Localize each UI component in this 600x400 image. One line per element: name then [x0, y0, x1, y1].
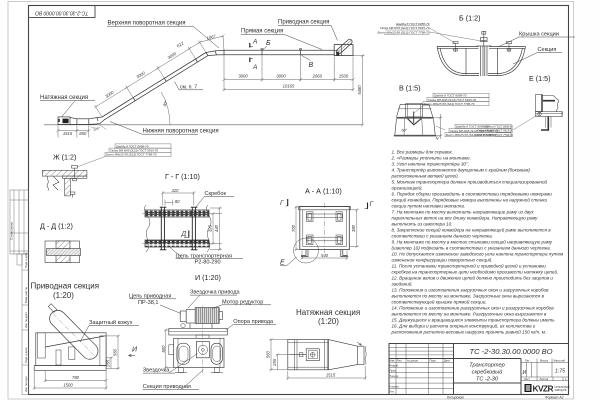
svg-text:Т.контр.: Т.контр.	[390, 374, 400, 378]
svg-text:Подп.: Подп.	[430, 359, 437, 363]
svg-text:Лит.: Лит.	[525, 358, 530, 362]
svg-text:Г: Г	[280, 200, 284, 207]
svg-text:Болт М8х25.58 ГОСТ 7798-70: Болт М8х25.58 ГОСТ 7798-70	[475, 133, 513, 137]
svg-text:Опора привода: Опора привода	[233, 319, 274, 325]
svg-text:Верхняя поворотная секция: Верхняя поворотная секция	[108, 21, 186, 27]
svg-text:320: 320	[172, 188, 180, 193]
svg-text:780: 780	[72, 375, 80, 380]
svg-text:4. Транспортёр выполняется: 4. Транспортёр выполняется двухцепным с …	[392, 166, 531, 172]
svg-text:12. Вращение валов и движе: 12. Вращение валов и движение цепей долж…	[392, 274, 554, 280]
svg-text:ЗАВОД РФ: ЗАВОД РФ	[555, 389, 567, 392]
svg-text:2. «Размеры уточнить на мо: 2. «Размеры уточнить на монтаже.	[391, 155, 472, 160]
svg-text:секций конвейера. Порядковые: секций конвейера. Порядковые номера выпо…	[392, 196, 548, 202]
svg-text:Копировал: Копировал	[447, 396, 464, 400]
svg-text:Подп. и дата: Подп. и дата	[24, 347, 28, 363]
svg-text:5480: 5480	[357, 85, 362, 95]
svg-text:3. Угол наклона транспортёр: 3. Угол наклона транспортёра 30°.	[392, 161, 470, 166]
svg-text:Подп. и дата: Подп. и дата	[24, 252, 28, 268]
svg-text:15. Движущиеся и вращающиес: 15. Движущиеся и вращающиеся элементы тр…	[392, 317, 556, 322]
svg-text:265: 265	[106, 359, 111, 368]
svg-text:Болт М8х25.58 (S13) ГОСТ 7798-: Болт М8х25.58 (S13) ГОСТ 7798-70	[106, 153, 157, 157]
svg-text:Б (1:2): Б (1:2)	[459, 14, 481, 23]
svg-text:Прямая секция: Прямая секция	[241, 29, 283, 35]
svg-text:Инв. № подл.: Инв. № подл.	[24, 376, 28, 392]
svg-text:440: 440	[214, 224, 219, 232]
svg-text:Цепь приводная: Цепь приводная	[129, 293, 171, 299]
svg-text:№ докум.: № докум.	[407, 360, 419, 363]
svg-text:Транспортер: Транспортер	[469, 363, 505, 369]
svg-text:Масштаб: Масштаб	[554, 358, 566, 362]
svg-text:Ж (1:2): Ж (1:2)	[53, 153, 76, 162]
svg-text:2660: 2660	[312, 74, 323, 79]
svg-text:А - А (1:10): А - А (1:10)	[305, 187, 342, 196]
svg-text:Формат А2: Формат А2	[545, 396, 564, 400]
svg-text:ТС -2-30.30.00.0000 ВО: ТС -2-30.30.00.0000 ВО	[470, 347, 553, 356]
svg-text:Пров.: Пров.	[390, 369, 397, 373]
svg-text:Инв. № дубл.: Инв. № дубл.	[24, 312, 28, 328]
svg-text:Утв.: Утв.	[390, 390, 395, 394]
svg-text:Д: Д	[181, 231, 187, 238]
svg-text:Натяжная секция: Натяжная секция	[40, 95, 88, 101]
svg-text:560: 560	[113, 348, 118, 356]
svg-text:1:75: 1:75	[555, 369, 565, 375]
svg-text:Взам. инв. №: Взам. инв. №	[24, 287, 28, 303]
svg-text:А: А	[252, 64, 257, 71]
svg-text:Лист: Лист	[524, 377, 531, 381]
svg-text:Приводная секция: Приводная секция	[31, 282, 100, 291]
svg-text:3000: 3000	[238, 74, 248, 79]
svg-text:Скребок: Скребок	[205, 191, 227, 197]
svg-text:Г - Г (1:10): Г - Г (1:10)	[165, 172, 200, 181]
svg-text:ТС-2-30.30.00.0000 ВО: ТС-2-30.30.00.0000 ВО	[35, 10, 88, 16]
svg-text:расположения расчетно-весовые: расположения расчетно-весовые нагрузки п…	[391, 328, 547, 334]
svg-text:14. Положение и изготовлени: 14. Положение и изготовление разгрузочны…	[392, 305, 555, 310]
svg-text:Звездочка: Звездочка	[143, 368, 170, 374]
svg-text:7. На монтаже по месту вы: 7. На монтаже по месту выполнить направл…	[392, 209, 535, 214]
svg-text:Крышка секции: Крышка секции	[519, 32, 559, 38]
svg-text:16. Для выбора и расчета: 16. Для выбора и расчета опорных констру…	[392, 322, 536, 328]
svg-text:см. п. 7: см. п. 7	[180, 84, 197, 90]
svg-text:Дата: Дата	[444, 359, 450, 363]
svg-text:выполняется по месту на мо: выполняется по месту на монтаже. Разгруз…	[392, 311, 547, 316]
svg-text:6. Порядок сборки производи: 6. Порядок сборки производить в соответс…	[392, 191, 553, 196]
svg-text:700: 700	[291, 224, 296, 232]
svg-text:11. После установки транспо: 11. После установки транспортерной и при…	[392, 262, 547, 268]
svg-text:выполняется по месту на мо: выполняется по месту на монтаже. Загрузо…	[392, 293, 545, 298]
svg-text:В: В	[309, 62, 314, 69]
svg-text:соответствии с указанием да: соответствии с указанием данного чертежа…	[392, 233, 493, 238]
svg-text:Шайба 8 ГОСТ 6958-70: Шайба 8 ГОСТ 6958-70	[484, 125, 514, 129]
svg-text:13. Положения и изготовления: 13. Положения и изготовления загрузочных…	[392, 287, 550, 292]
svg-text:ТС -2-30: ТС -2-30	[476, 377, 499, 383]
svg-text:Разраб.: Разраб.	[390, 364, 400, 368]
svg-text:3000: 3000	[276, 74, 286, 79]
svg-text:соответствующей крышке прямо: соответствующей крышке прямой секции.	[392, 298, 487, 304]
svg-text:заеданий.: заеданий.	[391, 280, 413, 286]
svg-text:ПР-38,1: ПР-38,1	[138, 300, 159, 306]
svg-text:Р2-80-290: Р2-80-290	[195, 259, 221, 265]
svg-text:80: 80	[175, 199, 180, 204]
svg-text:скребков на транспортерные: скребков на транспортерные цепи необходи…	[392, 268, 559, 274]
svg-text:Защитный кожух: Защитный кожух	[89, 319, 133, 326]
svg-text:Д - Д (1:2): Д - Д (1:2)	[40, 222, 73, 231]
svg-text:1515: 1515	[326, 373, 336, 378]
svg-text:850: 850	[79, 131, 87, 136]
svg-text:Нижняя поворотная секция: Нижняя поворотная секция	[143, 129, 219, 135]
svg-text:Звездочка привода: Звездочка привода	[190, 290, 241, 296]
svg-text:560: 560	[266, 351, 271, 359]
svg-text:1500: 1500	[63, 383, 73, 388]
svg-text:секции путем наплавки метал: секции путем наплавки металла.	[392, 203, 466, 208]
svg-text:Листов: Листов	[540, 377, 549, 381]
svg-text:Гайка М8-6Н5 ГОСТ 5915-70: Гайка М8-6Н5 ГОСТ 5915-70	[477, 129, 513, 133]
svg-text:параллельных веток на все: параллельных веток на все длину конвейер…	[392, 214, 539, 220]
svg-text:8. Закрепление секций конве: 8. Закрепление секций конвейера на напра…	[392, 226, 552, 232]
svg-text:Болт М8х25.58 (S13) ГОСТ 7798-: Болт М8х25.58 (S13) ГОСТ 7798-70	[378, 30, 430, 34]
svg-text:организацией.: организацией.	[392, 184, 423, 190]
svg-text:1. Все размеры для справок: 1. Все размеры для справок.	[392, 149, 453, 154]
svg-text:60°: 60°	[402, 129, 408, 133]
svg-text:Натяжная секция: Натяжная секция	[296, 308, 360, 317]
svg-text:Приводная секция: Приводная секция	[278, 20, 329, 26]
svg-text:изменения конфигурации повор: изменения конфигурации поворотных секций…	[392, 256, 493, 262]
svg-text:320: 320	[208, 224, 213, 232]
svg-text:10. Не допускается изменение: 10. Не допускается изменение заводского …	[392, 251, 564, 256]
svg-text:Масса: Масса	[540, 358, 548, 362]
svg-text:Мотор редуктор: Мотор редуктор	[222, 299, 263, 305]
svg-text:скребковый: скребковый	[472, 369, 503, 376]
svg-text:Секция: Секция	[538, 47, 557, 53]
svg-text:Лист: Лист	[397, 359, 403, 363]
svg-text:Изм.: Изм.	[390, 359, 396, 363]
svg-text:Е (1:5): Е (1:5)	[529, 74, 551, 83]
svg-text:380: 380	[351, 224, 356, 232]
svg-text:800: 800	[161, 345, 166, 353]
svg-text:1515: 1515	[63, 131, 73, 136]
svg-text:45: 45	[435, 136, 439, 140]
svg-text:выполнить из швеллера 10.: выполнить из швеллера 10.	[392, 221, 453, 226]
svg-text:расположенным ветвей цепей.: расположенным ветвей цепей.	[391, 172, 459, 178]
svg-text:В (1:5): В (1:5)	[399, 84, 421, 93]
svg-text:1500: 1500	[339, 74, 349, 79]
svg-text:Е: Е	[280, 260, 285, 267]
svg-text:(1:20): (1:20)	[318, 317, 339, 326]
svg-text:255: 255	[272, 358, 277, 367]
svg-text:10165: 10165	[283, 84, 295, 89]
svg-text:И (1:20): И (1:20)	[195, 273, 221, 282]
svg-text:(1:20): (1:20)	[53, 291, 74, 300]
svg-text:И: И	[523, 370, 527, 376]
svg-text:9. На монтаже по месту в: 9. На монтаже по месту в местах стыковки…	[392, 238, 553, 244]
svg-text:Секция приводная: Секция приводная	[143, 384, 191, 390]
svg-text:Г: Г	[370, 201, 374, 208]
svg-text:(швеллер 10) подрезать в с: (швеллер 10) подрезать в соответствии с …	[392, 245, 551, 250]
svg-text:А: А	[252, 39, 257, 46]
svg-text:Согласовано: Согласовано	[10, 222, 14, 240]
svg-text:KVZR: KVZR	[533, 383, 554, 393]
svg-text:Н.контр.: Н.контр.	[390, 384, 400, 388]
svg-text:540: 540	[321, 253, 329, 258]
svg-text:Болт М8х25.58 (S13) ГОСТ 7798-: Болт М8х25.58 (S13) ГОСТ 7798-70	[424, 102, 475, 106]
svg-text:5. Монтаж транспортера долж: 5. Монтаж транспортера должен производит…	[392, 178, 548, 184]
